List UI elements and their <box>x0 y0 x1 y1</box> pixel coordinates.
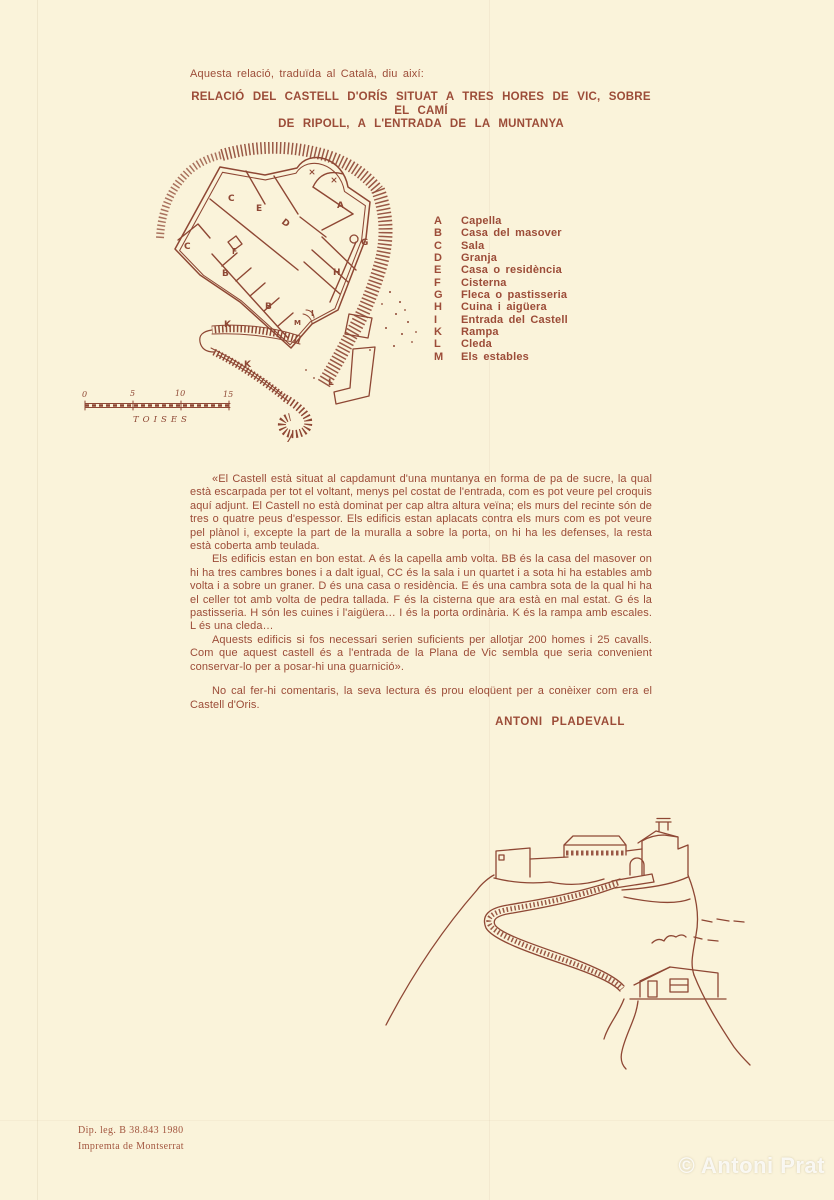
scale-tick: 15 <box>223 390 233 399</box>
legend-letter: F <box>434 277 461 289</box>
castle-base-line <box>494 878 604 884</box>
legend-row: CSala <box>434 240 568 252</box>
legend-letter: E <box>434 264 461 276</box>
legend-letter: L <box>434 338 461 350</box>
plan-letter: I <box>311 309 314 318</box>
plan-letter: H <box>333 268 341 278</box>
scale-tick: 0 <box>82 390 87 399</box>
castle-window <box>499 855 504 860</box>
walled-path-hatching <box>489 883 622 989</box>
scale-tick: 10 <box>175 389 185 398</box>
cliff-right-face <box>688 875 698 975</box>
legend-label: Cleda <box>461 338 492 350</box>
paper-crease-bottom <box>0 1120 834 1121</box>
plateau-edge <box>622 877 688 890</box>
paper-crease-left <box>37 0 38 1200</box>
legend-label: Fleca o pastisseria <box>461 289 567 301</box>
legend-letter: I <box>434 314 461 326</box>
castle-roof-line <box>638 831 678 843</box>
plan-letter: G <box>361 238 368 248</box>
title-line-1: RELACIÓ DEL CASTELL D'ORÍS SITUAT A TRES… <box>186 91 656 118</box>
imprint-line-1: Dip. leg. B 38.843 1980 <box>78 1123 184 1139</box>
legend-row: DGranja <box>434 252 568 264</box>
scale-unit-label: TOISES <box>133 415 191 425</box>
legend-row: GFleca o pastisseria <box>434 289 568 301</box>
legend-row: MEls estables <box>434 351 568 363</box>
plan-letter: B <box>222 269 229 279</box>
legend-label: Casa del masover <box>461 227 562 239</box>
legend-letter: G <box>434 289 461 301</box>
legend-letter: H <box>434 301 461 313</box>
legend-letter: C <box>434 240 461 252</box>
legend-row: BCasa del masover <box>434 227 568 239</box>
ramp-platform <box>612 874 654 888</box>
paragraph-1: «El Castell està situat al capdamunt d'u… <box>190 473 652 553</box>
legend-letter: D <box>434 252 461 264</box>
author-signature: ANTONI PLADEVALL <box>190 716 652 728</box>
plan-letter: D <box>279 217 291 229</box>
legend-row: IEntrada del Castell <box>434 314 568 326</box>
paragraph-4: No cal fer-hi comentaris, la seva lectur… <box>190 685 652 712</box>
legend-letter: M <box>434 351 461 363</box>
scale-bar: 0 5 10 15 TOISES <box>82 389 233 425</box>
legend-label: Casa o residència <box>461 264 562 276</box>
legend-label: Cisterna <box>461 277 507 289</box>
legend-label: Els estables <box>461 351 529 363</box>
legend-label: Sala <box>461 240 484 252</box>
cleda-enclosure <box>334 347 375 404</box>
rock-scribble <box>652 935 686 943</box>
plan-letter: F <box>232 247 237 256</box>
legend-label: Entrada del Castell <box>461 314 568 326</box>
enclosure-outer-wall <box>175 158 370 348</box>
castle-plan-figure: A B B C C D E F G H I K K L M 0 5 10 15 … <box>60 142 450 442</box>
body-text: «El Castell està situat al capdamunt d'u… <box>190 473 652 712</box>
legend-letter: B <box>434 227 461 239</box>
paragraph-2: Els edificis estan en bon estat. A és la… <box>190 553 652 633</box>
castle-sketch-figure <box>372 815 792 1070</box>
plan-letter: A <box>337 201 344 211</box>
castle-left-block <box>496 848 530 878</box>
document-title: RELACIÓ DEL CASTELL D'ORÍS SITUAT A TRES… <box>186 91 656 132</box>
copyright-watermark: © Antoni Prat <box>678 1153 825 1179</box>
scale-tick: 5 <box>130 389 135 398</box>
castle-mid-wall <box>626 849 642 851</box>
hill-right-slope <box>694 975 750 1065</box>
cliff-dash-marks <box>694 919 744 941</box>
castle-chimney <box>656 819 671 832</box>
legend-label: Cuina i aigüera <box>461 301 547 313</box>
legend-row: FCisterna <box>434 277 568 289</box>
path-squiggle-2 <box>621 1001 638 1069</box>
plan-letter: M <box>294 319 301 327</box>
legend-row: ACapella <box>434 215 568 227</box>
imprint-block: Dip. leg. B 38.843 1980 Impremta de Mont… <box>78 1123 184 1155</box>
legend-letter: K <box>434 326 461 338</box>
castle-wall <box>530 857 568 859</box>
lower-house-door <box>648 981 657 997</box>
lower-house-roof <box>634 967 670 985</box>
legend-row: LCleda <box>434 338 568 350</box>
lower-house-box <box>670 979 688 992</box>
plan-letter: L <box>328 378 334 388</box>
plan-letter: K <box>224 320 232 330</box>
legend-row: KRampa <box>434 326 568 338</box>
document-page: Aquesta relació, traduïda al Català, diu… <box>0 0 834 1200</box>
path-squiggle-1 <box>604 999 624 1039</box>
plan-legend: ACapella BCasa del masover CSala DGranja… <box>434 215 568 363</box>
hill-left-slope <box>386 875 494 1025</box>
plan-letter: E <box>256 204 262 214</box>
plan-letter: B <box>265 302 272 312</box>
walled-path-lower-edge <box>494 887 624 986</box>
intro-line: Aquesta relació, traduïda al Català, diu… <box>190 68 652 80</box>
legend-label: Granja <box>461 252 497 264</box>
title-line-2: DE RIPOLL, A L'ENTRADA DE LA MUNTANYA <box>186 118 656 132</box>
plan-letter: K <box>244 360 252 370</box>
plan-letters: A B B C C D E F G H I K K L M <box>184 194 368 388</box>
oven-circle <box>350 235 358 243</box>
legend-row: ECasa o residència <box>434 264 568 276</box>
legend-label: Capella <box>461 215 502 227</box>
plan-letter: C <box>228 194 235 204</box>
plan-letter: C <box>184 242 191 252</box>
terrain-line <box>624 897 690 903</box>
imprint-line-2: Impremta de Montserrat <box>78 1139 184 1155</box>
castle-right-building <box>642 835 688 875</box>
rock-dots <box>305 291 417 379</box>
legend-letter: A <box>434 215 461 227</box>
paragraph-3: Aquests edificis si fos necessari serien… <box>190 634 652 674</box>
legend-row: HCuina i aigüera <box>434 301 568 313</box>
rock-band-upper-left <box>160 155 222 238</box>
legend-label: Rampa <box>461 326 499 338</box>
